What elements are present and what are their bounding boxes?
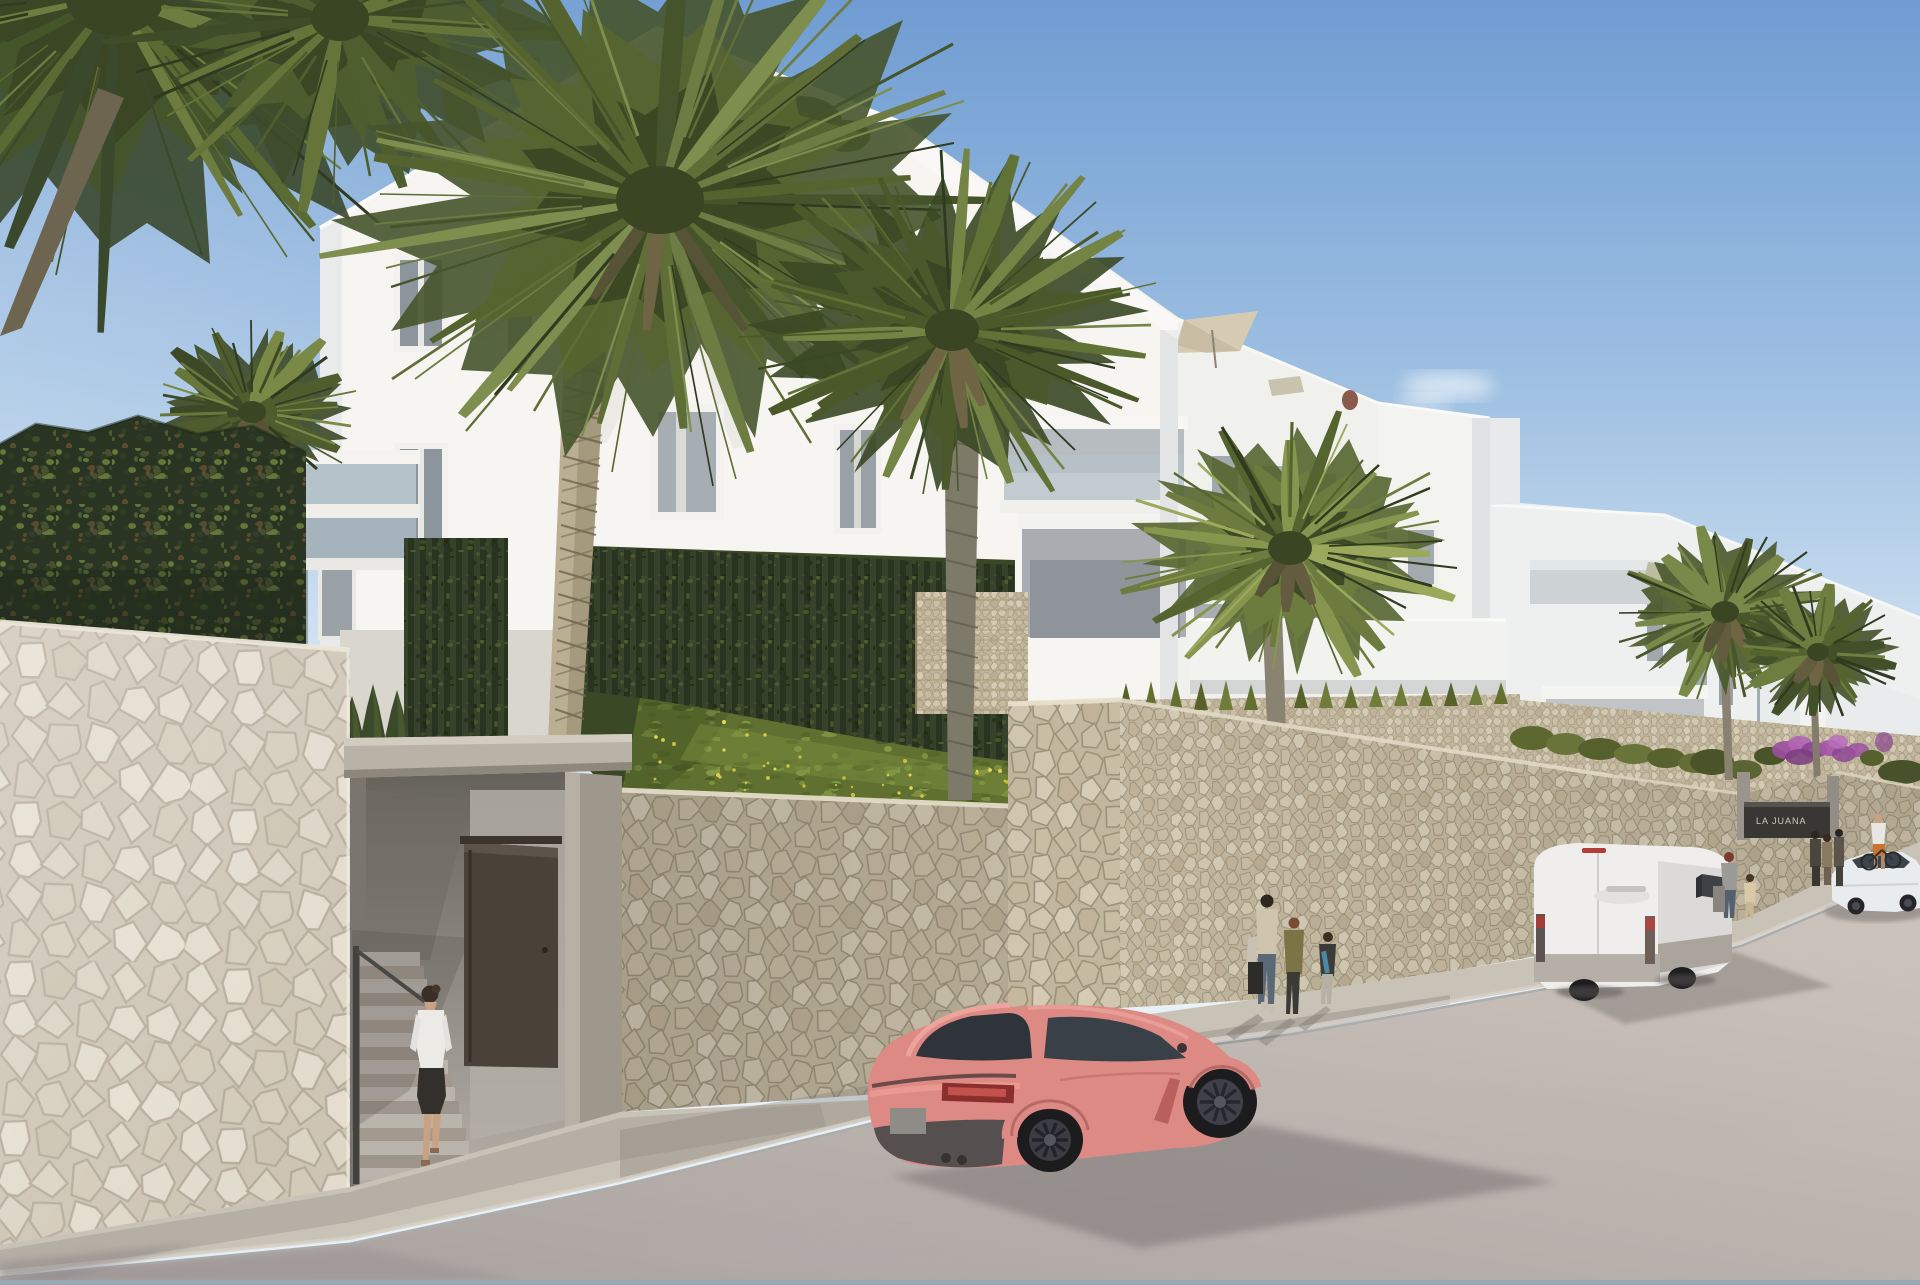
svg-text:LA JUANA: LA JUANA — [1756, 816, 1807, 826]
